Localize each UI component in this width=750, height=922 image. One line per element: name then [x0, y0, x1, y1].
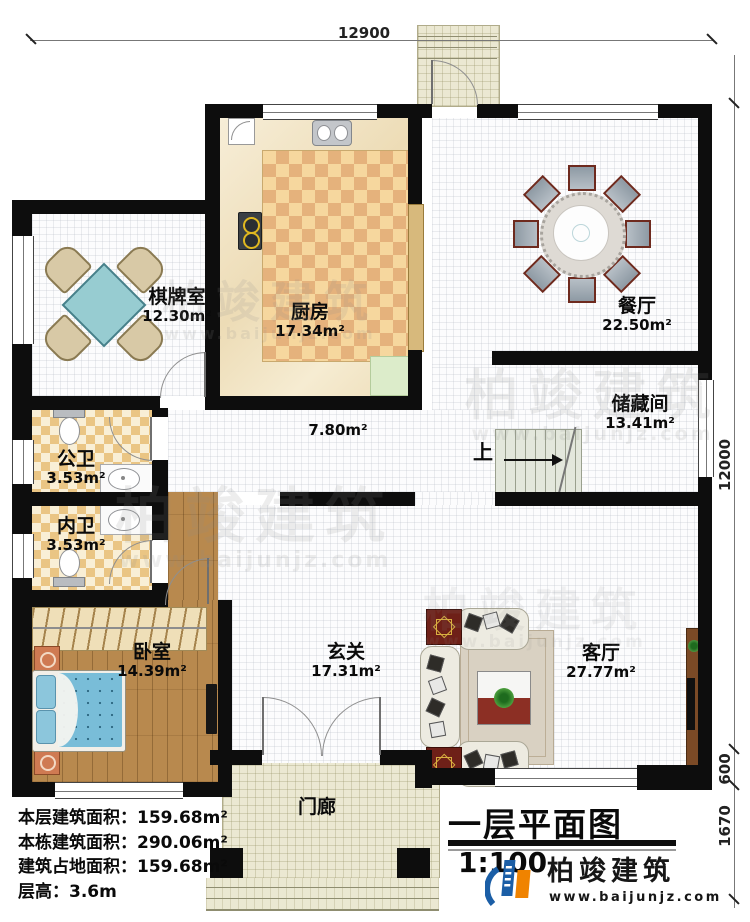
bath-sink	[108, 468, 140, 490]
kitchen-corner-cabinet	[228, 118, 255, 145]
toilet-bowl	[59, 417, 80, 445]
room-label-porch: 门廊	[298, 797, 336, 818]
room-label-public-bath: 公卫3.53m²	[46, 449, 105, 487]
dining-chair	[568, 165, 596, 191]
cabinet-corner-arc	[231, 121, 250, 140]
wall	[495, 492, 712, 506]
bedroom-tv	[206, 684, 217, 734]
wall	[12, 590, 168, 607]
bath-sink	[108, 509, 140, 531]
window	[12, 534, 34, 578]
bed-pillow	[36, 675, 56, 709]
window	[518, 104, 658, 120]
brand-logo-icon	[485, 854, 539, 908]
wall	[12, 200, 32, 236]
dimension-right-lower-value: 600	[716, 741, 734, 797]
dining-storage-passage-floor	[432, 351, 492, 365]
wall	[210, 750, 262, 765]
wall	[207, 396, 422, 410]
stairs	[495, 429, 582, 495]
corridor-area-label: 7.80m²	[308, 422, 367, 439]
sofa-pillow	[429, 721, 446, 738]
coffee-table	[477, 671, 531, 725]
wall	[12, 344, 32, 440]
entry-door-right-leaf	[379, 697, 381, 755]
nightstand	[34, 646, 60, 672]
toilet	[53, 577, 85, 587]
side-porch-door-leaf	[431, 60, 433, 104]
corridor-hall-gap-floor	[415, 492, 495, 506]
info-line: 层高：3.6m	[18, 880, 228, 905]
window	[698, 380, 714, 477]
wall	[377, 104, 432, 118]
kitchen-stove	[238, 212, 262, 250]
porch-steps	[206, 878, 439, 911]
bedroom-door-leaf	[207, 558, 209, 604]
wall	[698, 477, 712, 790]
bed-pillow	[36, 710, 56, 744]
window	[12, 236, 34, 344]
room-label-entry: 玄关17.31m²	[311, 642, 381, 680]
wall	[12, 578, 32, 797]
end-table	[426, 609, 462, 645]
side-porch-step-line-2	[418, 47, 497, 48]
side-porch-step-line-1	[418, 36, 497, 37]
room-label-living: 客厅27.77m²	[566, 643, 636, 681]
wall	[152, 408, 168, 417]
dimension-right-bottom-value: 1670	[716, 798, 734, 854]
wall	[12, 492, 152, 506]
kitchen-dining-door	[408, 204, 424, 352]
brand-name: 柏竣建筑	[547, 858, 675, 885]
dining-table-center	[572, 224, 590, 242]
kitchen-mat	[370, 356, 410, 396]
kitchen-sink	[312, 120, 352, 146]
dimension-top-value: 12900	[334, 24, 394, 42]
stairs-arrow-shaft	[504, 459, 554, 461]
dimension-line-right	[734, 55, 735, 908]
wall	[152, 460, 168, 540]
nightstand	[34, 749, 60, 775]
wall	[637, 765, 712, 790]
title-rule-thick	[448, 840, 676, 846]
wall	[12, 396, 160, 410]
wall	[477, 104, 518, 118]
wall	[427, 768, 495, 785]
window	[12, 440, 34, 484]
dining-chair	[513, 220, 539, 248]
dining-chair	[625, 220, 651, 248]
room-label-chess: 棋牌室12.30m²	[142, 287, 212, 325]
side-porch-step-line-3	[418, 58, 497, 59]
area-info-block: 本层建筑面积：159.68m² 本栋建筑面积：290.06m² 建筑占地面积：1…	[18, 806, 228, 904]
porch-column	[397, 848, 430, 878]
wall	[12, 782, 55, 797]
room-label-storage: 储藏间13.41m²	[605, 394, 675, 432]
info-line: 本层建筑面积：159.68m²	[18, 806, 228, 831]
stairs-up-label: 上	[473, 436, 493, 465]
public-bath-door-leaf	[150, 417, 152, 460]
floor-plan-canvas: 棋牌室12.30m² 厨房17.34m² 餐厅22.50m² 储藏间13.41m…	[0, 0, 750, 922]
info-line: 本栋建筑面积：290.06m²	[18, 831, 228, 856]
info-line: 建筑占地面积：159.68m²	[18, 855, 228, 880]
brand-logo: 柏竣建筑 www.baijunjz.com	[485, 852, 725, 912]
window	[263, 104, 377, 120]
room-label-bedroom: 卧室14.39m²	[117, 642, 187, 680]
wall	[492, 351, 712, 365]
room-label-private-bath: 内卫3.53m²	[46, 516, 105, 554]
brand-url: www.baijunjz.com	[549, 890, 722, 905]
wall	[698, 104, 712, 380]
wall	[408, 104, 422, 204]
dimension-tick	[25, 33, 36, 44]
window	[55, 782, 183, 799]
dimension-right-value: 12000	[716, 430, 734, 500]
wall	[205, 104, 220, 410]
wall	[280, 492, 415, 506]
wall	[183, 782, 232, 797]
title-rule-thin	[448, 849, 676, 851]
window	[495, 768, 637, 787]
private-bath-door-leaf	[150, 540, 152, 583]
dimension-tick	[706, 33, 717, 44]
stairs-arrow-head	[552, 454, 563, 466]
chess-room-door-leaf	[204, 352, 206, 397]
entry-door-left-leaf	[262, 697, 264, 755]
room-label-dining: 餐厅22.50m²	[602, 296, 672, 334]
dining-chair	[568, 277, 596, 303]
room-label-kitchen: 厨房17.34m²	[275, 302, 345, 340]
wall	[12, 200, 218, 214]
living-tv	[687, 678, 695, 730]
plan-title: 一层平面图	[448, 805, 623, 844]
